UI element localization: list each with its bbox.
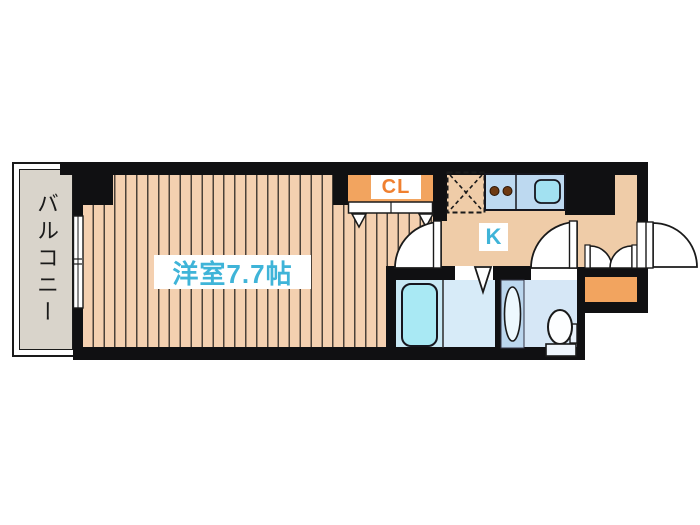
wall — [73, 162, 83, 216]
wall — [386, 266, 396, 360]
wall — [495, 280, 501, 348]
wall — [60, 162, 648, 175]
kitchen-label-box: K — [479, 223, 508, 251]
wall — [565, 162, 615, 215]
shoe-cabinet — [585, 277, 637, 302]
floor-plan: バルコニー — [0, 0, 700, 525]
bathroom-floor — [443, 280, 495, 348]
entrance-door-icon — [637, 222, 697, 268]
wall — [577, 268, 585, 360]
main-room-label: 洋室7.7帖 — [172, 254, 292, 291]
main-room-label-box: 洋室7.7帖 — [154, 255, 311, 289]
wall — [73, 347, 585, 360]
wall — [386, 266, 455, 280]
closet-label: CL — [382, 176, 411, 199]
wall — [577, 267, 637, 277]
wall — [333, 162, 348, 205]
kitchen-label: K — [486, 224, 502, 250]
bath-doorway — [455, 266, 493, 280]
balcony-label: バルコニー — [30, 192, 62, 327]
washroom-doorway — [531, 266, 577, 280]
balcony-deck: バルコニー — [19, 169, 73, 350]
closet-label-box: CL — [371, 175, 421, 199]
wall — [637, 162, 648, 222]
wall — [577, 302, 648, 313]
wall — [433, 162, 447, 221]
balcony: バルコニー — [12, 162, 75, 357]
wall — [493, 266, 531, 280]
washroom-floor — [501, 280, 577, 348]
bathtub-area — [396, 280, 443, 348]
